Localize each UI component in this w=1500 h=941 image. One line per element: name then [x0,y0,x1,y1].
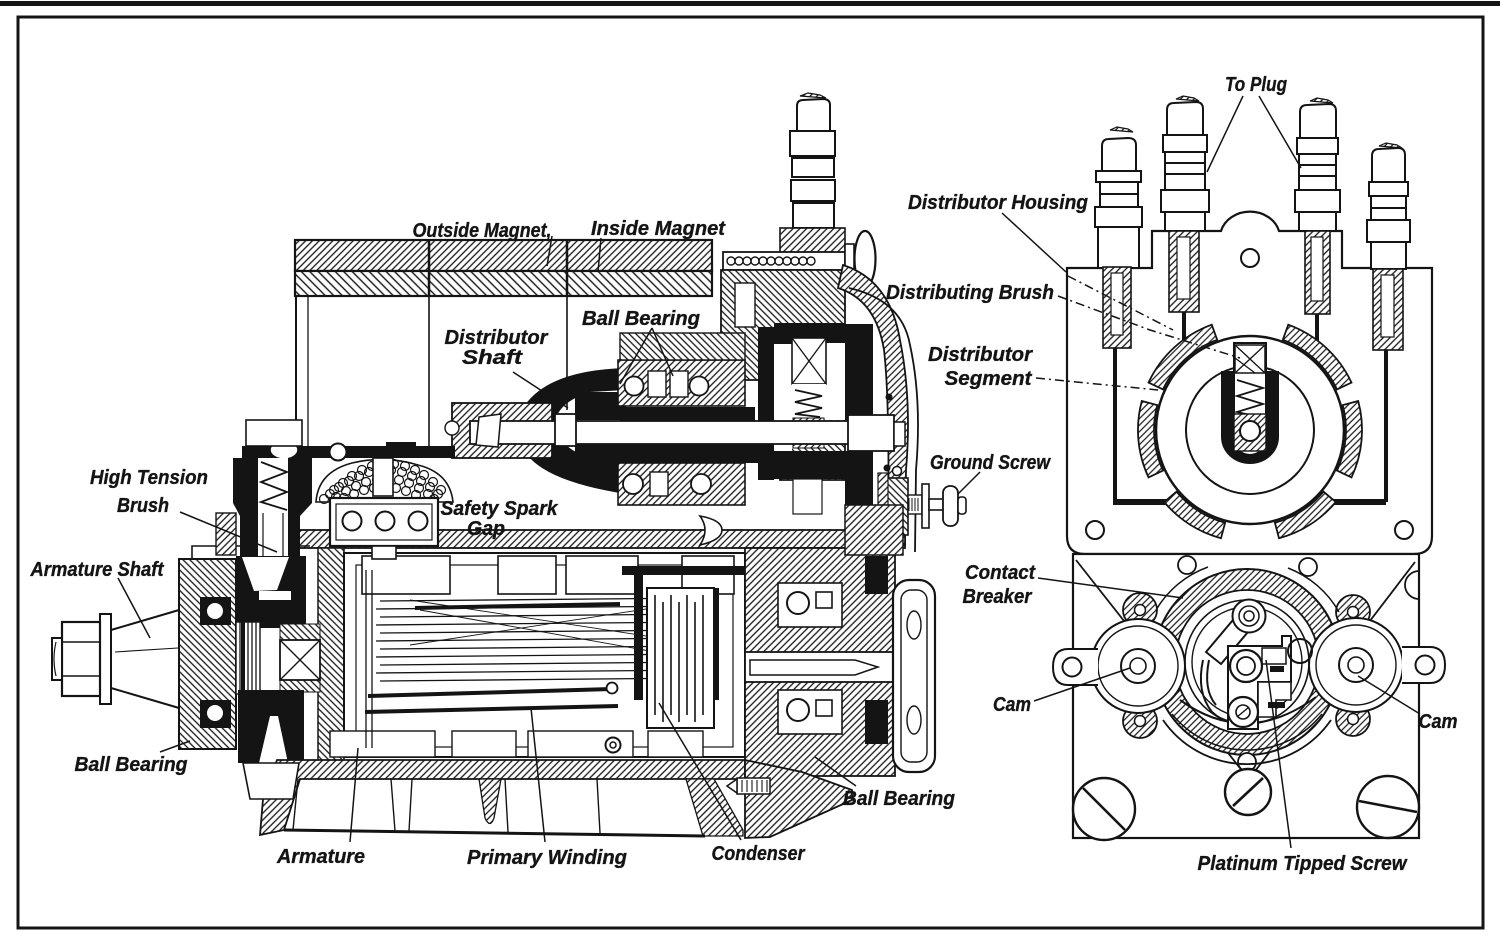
svg-text:Condenser: Condenser [712,843,806,865]
svg-text:Cam: Cam [993,694,1031,716]
svg-text:Brush: Brush [117,495,169,517]
svg-text:Distributor: Distributor [445,327,549,349]
svg-text:Ground Screw: Ground Screw [930,452,1051,474]
svg-text:Ball Bearing: Ball Bearing [75,754,188,776]
svg-text:Platinum Tipped Screw: Platinum Tipped Screw [1198,853,1408,875]
svg-text:Outside Magnet,: Outside Magnet, [413,220,552,242]
svg-text:To Plug: To Plug [1225,74,1287,96]
svg-text:Cam: Cam [1419,711,1458,733]
svg-text:Armature Shaft: Armature Shaft [30,559,165,581]
svg-text:Safety Spark: Safety Spark [441,498,559,520]
svg-text:Inside Magnet: Inside Magnet [591,218,726,240]
svg-text:Breaker: Breaker [963,586,1033,608]
svg-text:Shaft: Shaft [462,347,524,369]
svg-text:Armature: Armature [276,846,365,868]
svg-text:Gap: Gap [467,518,505,540]
svg-text:Primary Winding: Primary Winding [467,847,627,869]
svg-text:Ball Bearing: Ball Bearing [843,788,955,810]
svg-text:Contact: Contact [965,562,1036,584]
svg-text:Distributor Housing: Distributor Housing [908,192,1088,214]
svg-text:Distributing Brush: Distributing Brush [886,282,1054,304]
svg-text:High Tension: High Tension [90,467,208,489]
svg-text:Ball Bearing: Ball Bearing [582,308,700,330]
svg-text:Distributor: Distributor [928,344,1033,366]
svg-text:Segment: Segment [945,368,1033,390]
